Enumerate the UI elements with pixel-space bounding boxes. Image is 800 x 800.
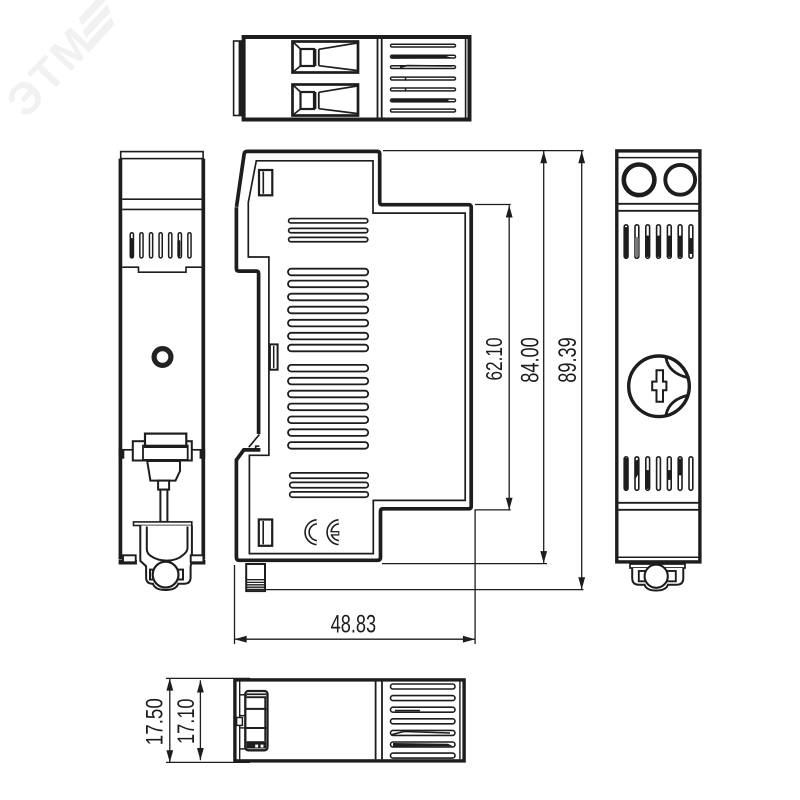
- svg-text:84.00: 84.00: [517, 337, 545, 383]
- svg-text:62.10: 62.10: [481, 338, 507, 381]
- svg-text:89.39: 89.39: [554, 337, 582, 383]
- svg-text:17.10: 17.10: [173, 698, 200, 744]
- svg-text:17.50: 17.50: [142, 698, 169, 745]
- svg-text:48.83: 48.83: [331, 611, 377, 639]
